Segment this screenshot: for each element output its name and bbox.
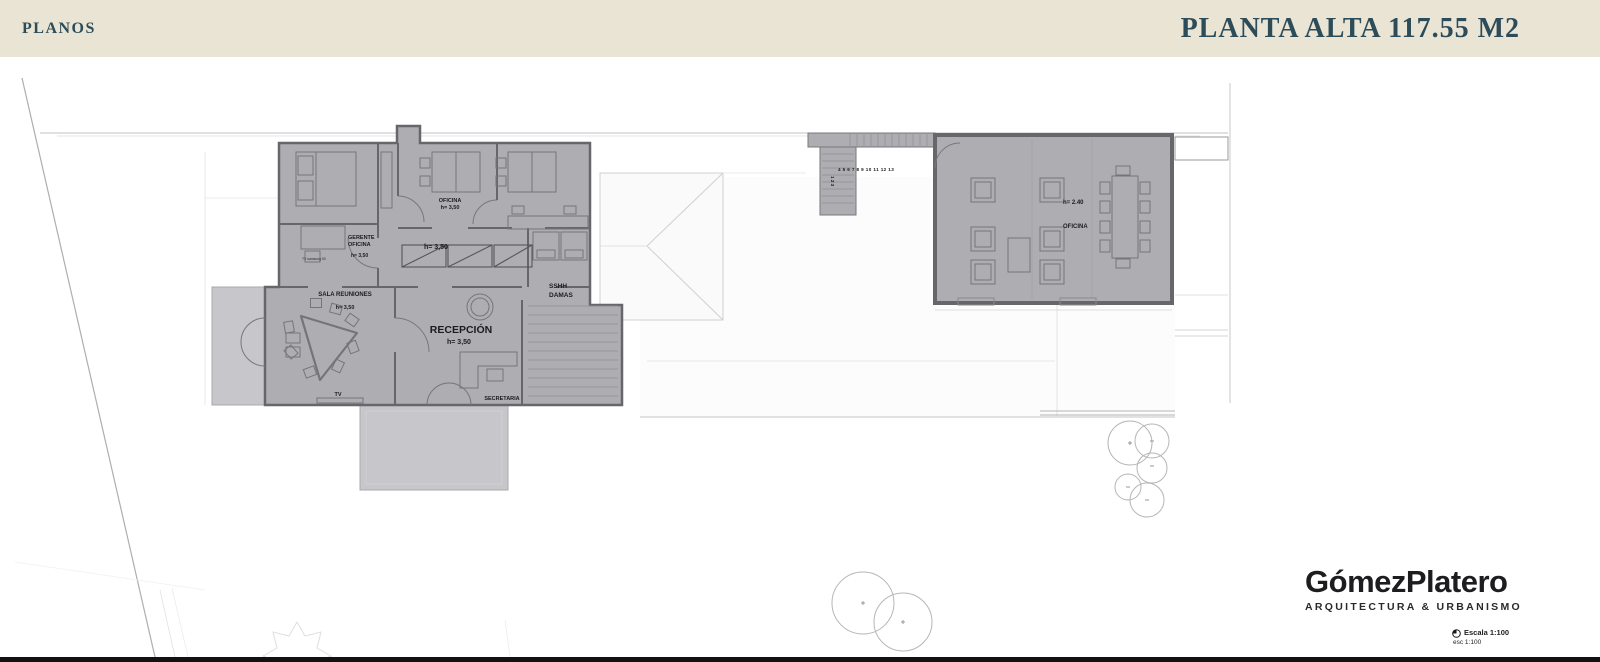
- label-recepcion: RECEPCIÓN: [430, 323, 492, 336]
- left-building: [212, 126, 622, 490]
- stair-tread-numbers: 4 5 6 7 8 9 10 11 12 13: [838, 167, 894, 172]
- label-sala: SALA REUNIONES: [318, 292, 371, 298]
- label-gerente-1: GERENTE: [348, 235, 375, 241]
- tree-symbols: [832, 421, 1169, 651]
- firm-logo-name: GómezPlatero: [1305, 566, 1522, 597]
- firm-logo: GómezPlatero ARQUITECTURA & URBANISMO: [1305, 566, 1522, 613]
- floor-plan-drawing: 4 5 6 7 8 9 10 11 12 13 1 2 3: [0, 0, 1600, 662]
- scale-label: Escala 1:100: [1464, 629, 1509, 637]
- label-gerente-2: OFICINA: [348, 242, 371, 248]
- label-sshh-1: SSHH: [549, 283, 567, 290]
- label-gerente-h: h= 3,50: [351, 253, 368, 259]
- stair-tread-numbers-start: 1 2 3: [830, 176, 835, 187]
- north-icon: [1452, 629, 1461, 638]
- header-bar: PLANOS PLANTA ALTA 117.55 M2: [0, 0, 1600, 57]
- label-oficina-right: OFICINA: [1063, 224, 1088, 230]
- balcony: [212, 287, 265, 405]
- label-recepcion-h: h= 3,50: [447, 339, 471, 346]
- terrace: [360, 405, 508, 490]
- scale-sublabel: esc 1:100: [1453, 639, 1509, 646]
- plant-symbol: [263, 622, 331, 662]
- right-building: [935, 135, 1172, 305]
- label-sala-h: h= 3,50: [336, 305, 355, 311]
- firm-logo-subtitle: ARQUITECTURA & URBANISMO: [1305, 601, 1522, 613]
- page: 4 5 6 7 8 9 10 11 12 13 1 2 3: [0, 0, 1600, 662]
- label-tv-note: TV samsung 50: [302, 257, 326, 261]
- label-tv: TV: [334, 392, 341, 398]
- label-sshh-2: DAMAS: [549, 292, 573, 299]
- bottom-border: [0, 657, 1600, 662]
- label-oficina-right-h: h= 2.40: [1063, 200, 1084, 206]
- section-title: PLANOS: [22, 20, 96, 38]
- label-oficina-left-h: h= 3,50: [441, 205, 460, 211]
- label-oficina-left: OFICINA: [439, 198, 462, 204]
- scale-note: Escala 1:100 esc 1:100: [1452, 629, 1509, 646]
- label-secretaria: SECRETARIA: [484, 396, 519, 402]
- label-pasillo-h: h= 3,50: [424, 244, 448, 251]
- page-title: PLANTA ALTA 117.55 M2: [1181, 13, 1520, 45]
